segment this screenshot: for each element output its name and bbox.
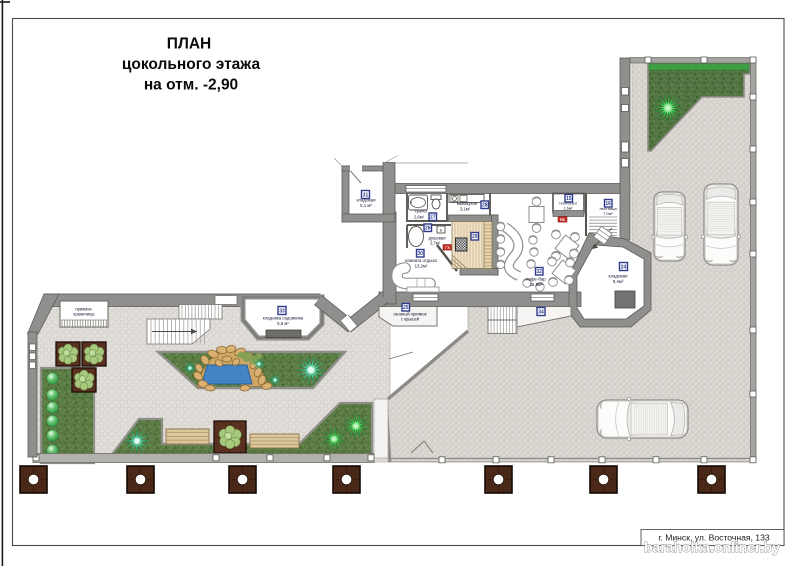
svg-text:9,4м²: 9,4м² — [613, 279, 624, 284]
svg-text:миникухня: миникухня — [457, 201, 478, 206]
svg-text:туалет: туалет — [415, 209, 428, 214]
svg-text:34: 34 — [538, 309, 544, 315]
svg-text:ПБ: ПБ — [560, 218, 566, 222]
svg-text:26: 26 — [425, 225, 431, 231]
svg-text:кладовая: кладовая — [608, 274, 628, 279]
svg-text:13,2м²: 13,2м² — [415, 263, 428, 268]
svg-text:5,6 м²: 5,6 м² — [277, 321, 289, 326]
svg-text:2,6м²: 2,6м² — [414, 215, 425, 220]
svg-text:хранилище: хранилище — [73, 312, 95, 317]
svg-text:29: 29 — [472, 234, 478, 240]
svg-text:26,8м²: 26,8м² — [529, 282, 543, 287]
svg-text:33: 33 — [279, 308, 285, 314]
svg-text:с крышей: с крышей — [401, 317, 419, 322]
svg-text:24: 24 — [621, 264, 627, 270]
svg-text:5,1 м²: 5,1 м² — [360, 203, 372, 208]
svg-text:на отм. -2,90: на отм. -2,90 — [144, 77, 238, 94]
svg-text:27: 27 — [430, 214, 436, 220]
svg-text:кладовая: кладовая — [356, 198, 376, 203]
svg-text:7,0м²: 7,0м² — [603, 211, 613, 216]
svg-text:28: 28 — [482, 202, 488, 208]
svg-text:цокольного этажа: цокольного этажа — [122, 56, 261, 73]
svg-text:3,1м²: 3,1м² — [460, 207, 471, 212]
svg-text:baraholka.onliner.by: baraholka.onliner.by — [644, 540, 780, 555]
svg-text:Б: Б — [440, 228, 443, 233]
svg-text:2,7м²: 2,7м² — [430, 241, 441, 246]
svg-text:30: 30 — [417, 251, 423, 257]
svg-text:кафе-бар: кафе-бар — [526, 277, 546, 282]
svg-text:ГХ: ГХ — [445, 246, 450, 250]
svg-text:ПЛАН: ПЛАН — [167, 36, 211, 53]
svg-text:32: 32 — [536, 269, 542, 275]
svg-text:комната отдыха: комната отдыха — [405, 258, 437, 263]
svg-text:кладовка садовника: кладовка садовника — [263, 316, 304, 321]
svg-text:25: 25 — [403, 305, 409, 311]
svg-text:1,6м²: 1,6м² — [563, 206, 573, 210]
svg-text:теплоузел: теплоузел — [559, 202, 577, 206]
